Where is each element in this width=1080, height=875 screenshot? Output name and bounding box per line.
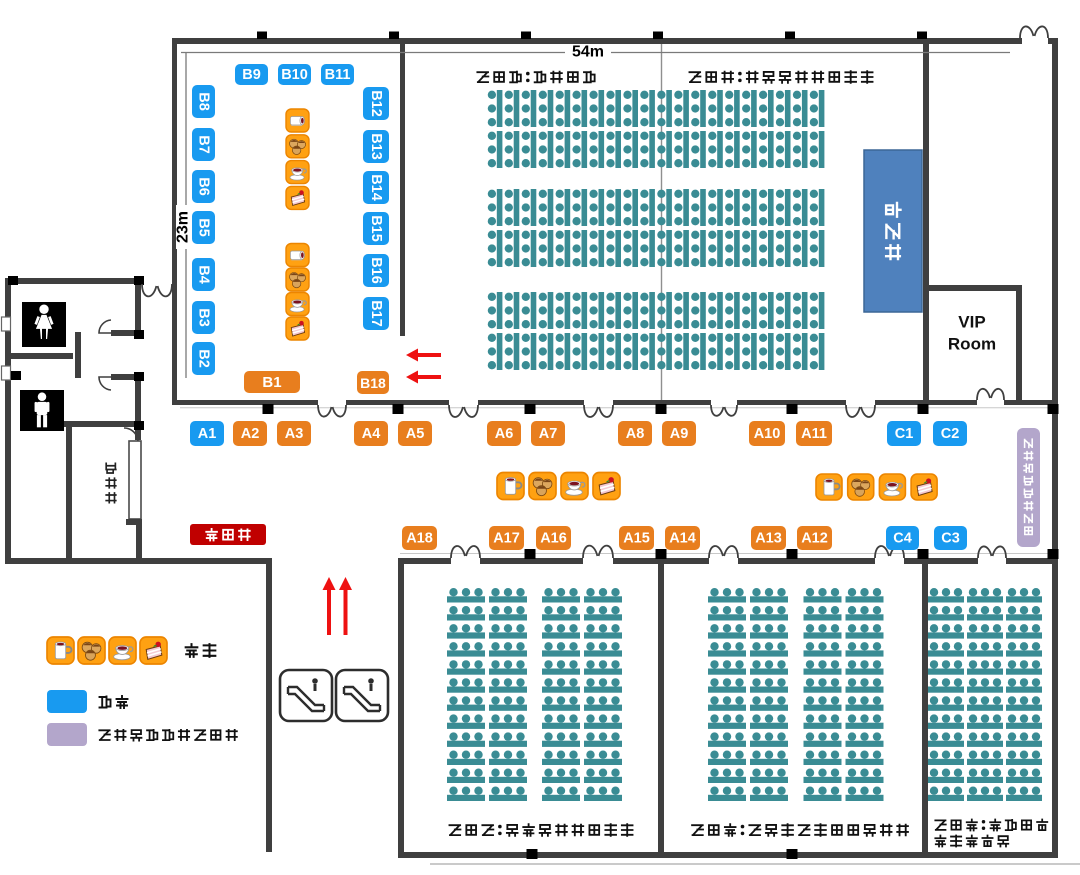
svg-text:A7: A7 (539, 426, 558, 442)
svg-text:B14: B14 (368, 174, 384, 201)
svg-text:A12: A12 (801, 531, 828, 547)
svg-text:B16: B16 (368, 257, 384, 284)
svg-text:B12: B12 (368, 90, 384, 117)
svg-text:B9: B9 (242, 67, 261, 83)
svg-text:B18: B18 (360, 375, 386, 391)
svg-text:54m: 54m (572, 44, 604, 61)
svg-text:B11: B11 (325, 67, 351, 83)
svg-text:B2: B2 (196, 349, 212, 368)
svg-text:A4: A4 (362, 426, 381, 442)
svg-text:B13: B13 (368, 133, 384, 160)
svg-text:C3: C3 (941, 531, 960, 547)
svg-text:A13: A13 (755, 531, 782, 547)
svg-text:B6: B6 (196, 177, 212, 196)
svg-text:B7: B7 (196, 135, 212, 154)
svg-text:A18: A18 (406, 531, 433, 547)
svg-text:C4: C4 (893, 531, 912, 547)
svg-text:C1: C1 (895, 426, 914, 442)
svg-text:A17: A17 (493, 531, 520, 547)
svg-text:A14: A14 (669, 531, 696, 547)
svg-text:A10: A10 (754, 426, 781, 442)
svg-text:A3: A3 (285, 426, 304, 442)
svg-text:A5: A5 (406, 426, 425, 442)
svg-text:B8: B8 (196, 92, 212, 111)
svg-text:23m: 23m (175, 211, 192, 243)
svg-text:Room: Room (948, 335, 996, 354)
svg-text:A16: A16 (540, 531, 567, 547)
svg-text:A9: A9 (670, 426, 689, 442)
svg-text:B17: B17 (368, 300, 384, 327)
svg-text:A1: A1 (198, 426, 217, 442)
svg-text:A2: A2 (241, 426, 260, 442)
svg-text:VIP: VIP (958, 313, 985, 332)
svg-text:B1: B1 (262, 374, 281, 391)
svg-text:C2: C2 (941, 426, 960, 442)
svg-text:B3: B3 (196, 308, 212, 327)
svg-text:A15: A15 (623, 531, 650, 547)
svg-text:A8: A8 (626, 426, 645, 442)
svg-text:B10: B10 (281, 67, 308, 83)
svg-text:A11: A11 (801, 426, 827, 442)
svg-text:B4: B4 (196, 265, 212, 284)
svg-text:B5: B5 (196, 218, 212, 237)
svg-text:A6: A6 (495, 426, 514, 442)
svg-text:B15: B15 (368, 215, 384, 242)
